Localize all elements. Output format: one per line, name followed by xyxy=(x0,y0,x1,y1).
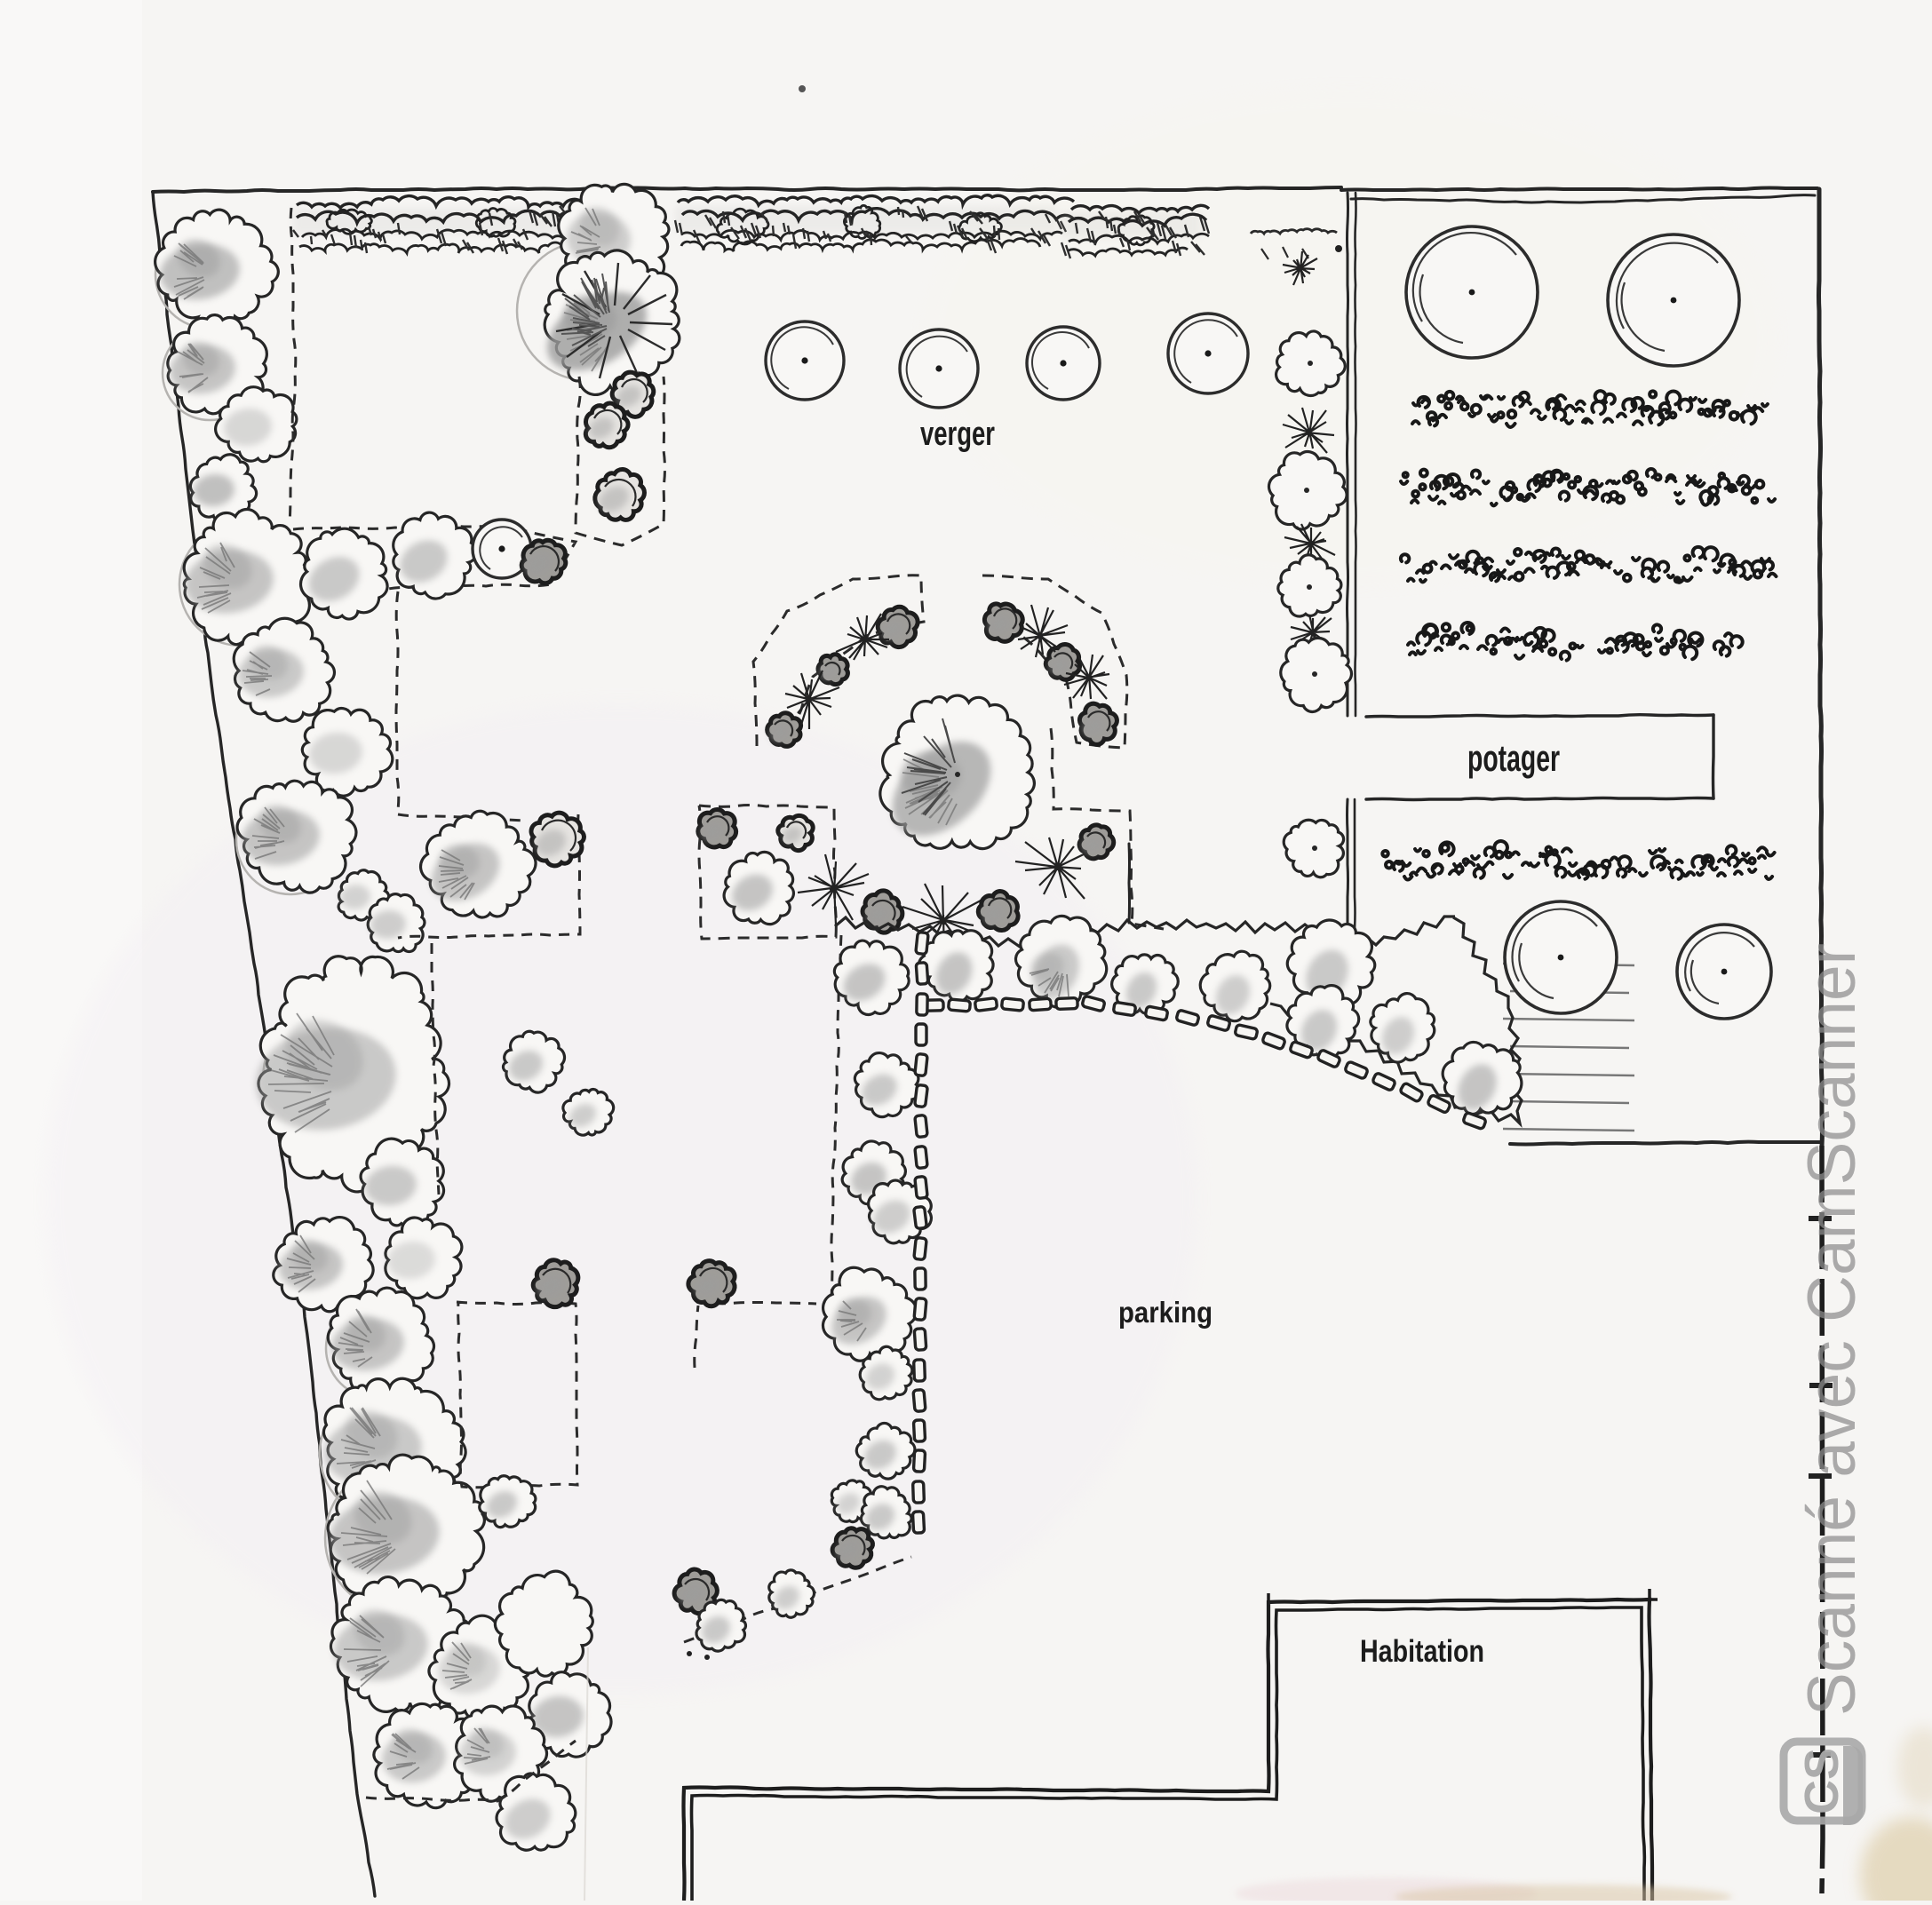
svg-text:verger: verger xyxy=(920,416,995,453)
svg-text:parking: parking xyxy=(1118,1296,1212,1329)
svg-text:Scanné avec CamScanner: Scanné avec CamScanner xyxy=(1794,943,1870,1716)
svg-text:potager: potager xyxy=(1467,737,1560,779)
svg-text:Habitation: Habitation xyxy=(1360,1634,1484,1669)
svg-text:CS: CS xyxy=(1795,1748,1849,1814)
